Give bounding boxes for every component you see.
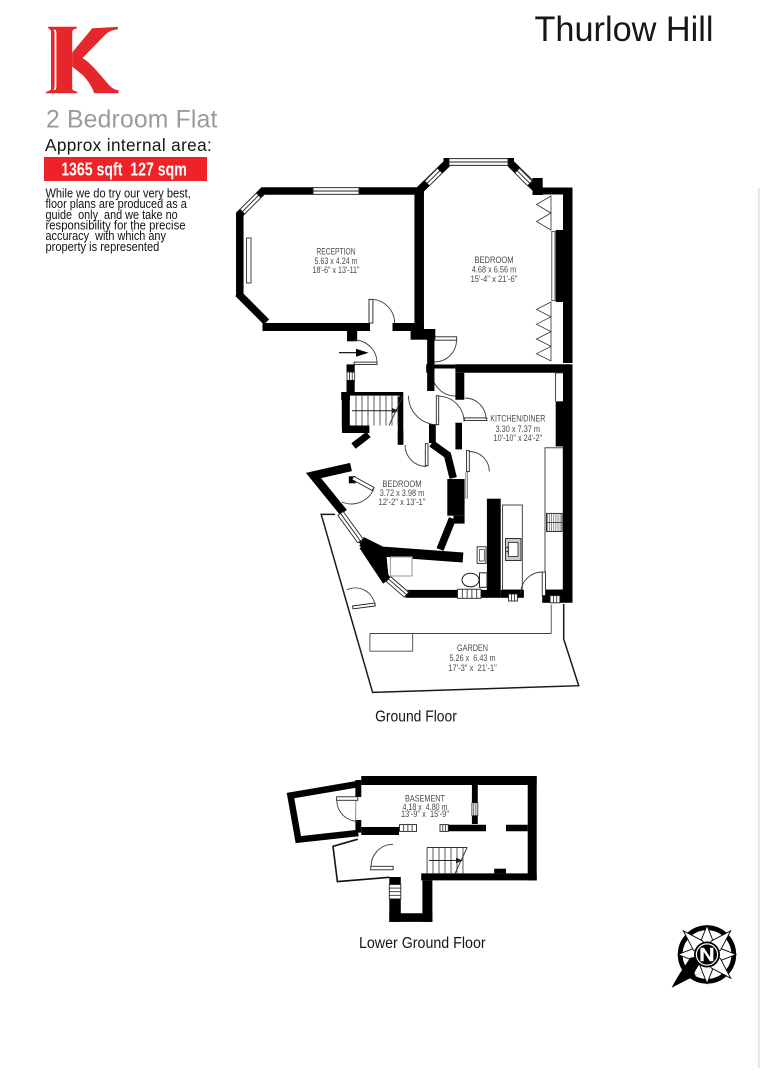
svg-text:15'-4" x 21'-6": 15'-4" x 21'-6" xyxy=(471,273,518,284)
svg-text:Lower Ground Floor: Lower Ground Floor xyxy=(359,935,486,952)
svg-text:18'-6" x 13'-11": 18'-6" x 13'-11" xyxy=(313,264,360,275)
svg-text:2 Bedroom Flat: 2 Bedroom Flat xyxy=(46,106,218,133)
svg-text:Ground Floor: Ground Floor xyxy=(375,709,457,726)
svg-text:1365 sqft 127 sqm: 1365 sqft 127 sqm xyxy=(61,160,187,181)
svg-text:10'-10" x 24'-2": 10'-10" x 24'-2" xyxy=(494,432,543,443)
svg-text:KITCHEN/DINER: KITCHEN/DINER xyxy=(490,413,545,424)
svg-text:17'-3" x 21'-1": 17'-3" x 21'-1" xyxy=(448,662,497,673)
svg-text:13'-9" x 15'-9": 13'-9" x 15'-9" xyxy=(401,809,449,819)
svg-text:Approx internal area:: Approx internal area: xyxy=(45,135,212,155)
svg-text:Thurlow Hill: Thurlow Hill xyxy=(535,9,714,49)
svg-text:property is represented: property is represented xyxy=(46,240,160,254)
svg-text:12'-2" x 13'-1": 12'-2" x 13'-1" xyxy=(379,496,426,507)
